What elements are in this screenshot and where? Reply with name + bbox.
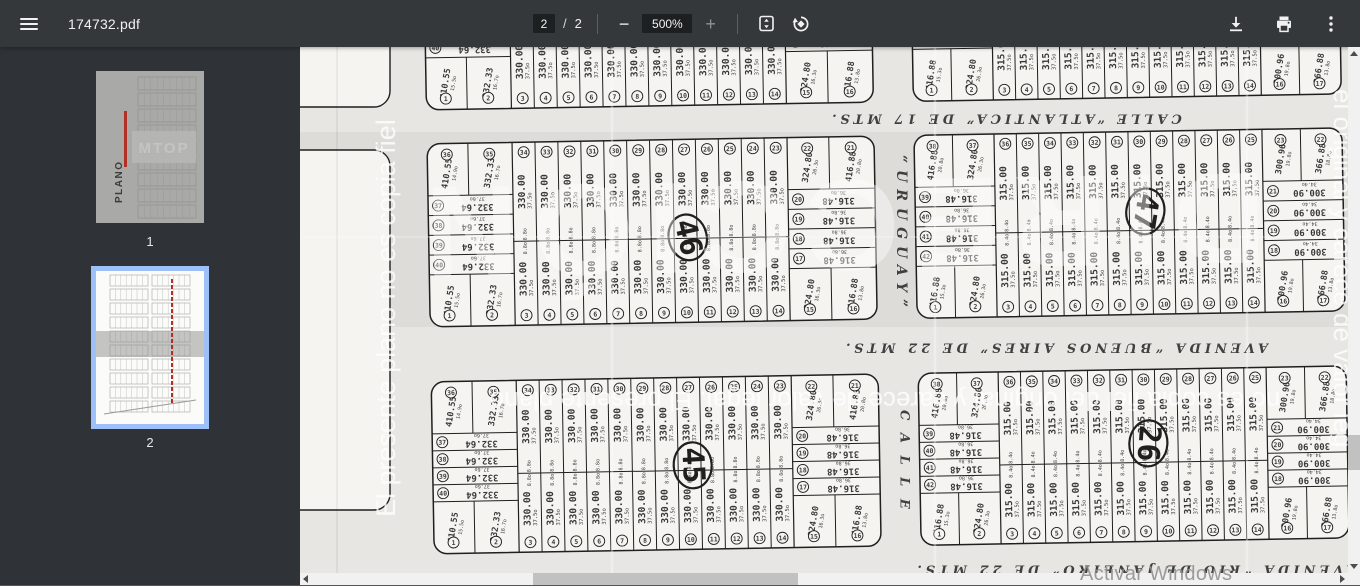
svg-text:AVENIDA “RIO DE JANEIRO” DE: AVENIDA “RIO DE JANEIRO” DE 22 MTS.: [914, 562, 1349, 574]
svg-text:19: 19: [799, 449, 807, 457]
svg-text:7: 7: [1092, 85, 1096, 93]
svg-text:11: 11: [706, 308, 714, 316]
svg-text:37.5o: 37.5o: [738, 424, 744, 441]
svg-text:2: 2: [970, 86, 974, 94]
svg-text:12: 12: [1209, 527, 1217, 535]
svg-text:37: 37: [438, 439, 446, 447]
svg-text:37.5o: 37.5o: [1080, 418, 1086, 435]
svg-text:4: 4: [544, 94, 548, 102]
svg-text:7: 7: [1095, 302, 1099, 310]
svg-text:330.00: 330.00: [675, 47, 687, 77]
svg-text:32: 32: [1095, 377, 1103, 385]
svg-text:37.6o: 37.6o: [474, 466, 489, 472]
svg-text:3: 3: [1010, 530, 1014, 538]
svg-text:38: 38: [439, 456, 447, 464]
svg-text:13: 13: [752, 308, 760, 316]
svg-text:26: 26: [1229, 374, 1237, 382]
thumbnail-page-1[interactable]: PLANOMTOP 1: [96, 71, 204, 249]
svg-text:315.00: 315.00: [996, 47, 1008, 71]
svg-text:14: 14: [779, 534, 787, 542]
svg-text:17: 17: [799, 483, 807, 491]
svg-text:37.5o: 37.5o: [1074, 53, 1080, 70]
svg-text:315.00: 315.00: [1004, 483, 1016, 518]
svg-text:37.5o: 37.5o: [602, 508, 608, 525]
svg-text:37.6o: 37.6o: [474, 432, 489, 438]
svg-text:315.00: 315.00: [1249, 479, 1261, 514]
svg-text:40: 40: [431, 47, 439, 52]
svg-text:316.48: 316.48: [827, 482, 860, 493]
svg-text:330.00: 330.00: [766, 47, 778, 75]
svg-text:8: 8: [1122, 528, 1126, 536]
svg-text:16: 16: [1276, 80, 1284, 88]
svg-text:13: 13: [1231, 526, 1239, 534]
svg-text:27: 27: [680, 146, 688, 154]
svg-text:37.5o: 37.5o: [1082, 500, 1088, 517]
svg-text:16: 16: [850, 305, 858, 313]
svg-text:8.4o: 8.4o: [1254, 447, 1260, 459]
svg-text:37.5o: 37.5o: [1214, 415, 1220, 432]
svg-text:37.5o: 37.5o: [1252, 50, 1258, 67]
svg-text:26: 26: [703, 145, 711, 153]
svg-text:8.8o: 8.8o: [756, 456, 762, 468]
svg-text:8.4o: 8.4o: [1053, 451, 1059, 463]
download-button[interactable]: [1222, 10, 1250, 38]
svg-text:37: 37: [969, 142, 977, 150]
svg-text:9: 9: [1136, 84, 1140, 92]
svg-text:8.8o: 8.8o: [733, 470, 739, 482]
svg-text:9: 9: [1144, 528, 1148, 536]
svg-text:36: 36: [1005, 378, 1013, 386]
svg-text:25: 25: [726, 145, 734, 153]
svg-text:37.5o: 37.5o: [692, 424, 698, 441]
svg-text:315.00: 315.00: [1071, 482, 1083, 517]
svg-text:10: 10: [1160, 300, 1168, 308]
svg-text:11: 11: [1183, 300, 1191, 308]
svg-text:8.8o: 8.8o: [527, 460, 533, 472]
svg-text:DIRECCIÓN: DIRECCIÓN: [410, 145, 1268, 306]
svg-text:8.8o: 8.8o: [573, 473, 579, 485]
svg-text:37.5o: 37.5o: [1163, 51, 1169, 68]
svg-text:12: 12: [733, 535, 741, 543]
svg-text:14: 14: [775, 307, 783, 315]
svg-text:36: 36: [1001, 140, 1009, 148]
svg-text:300.90: 300.90: [1294, 226, 1327, 237]
fit-to-page-button[interactable]: [753, 10, 780, 37]
svg-text:8.8o: 8.8o: [733, 456, 739, 468]
svg-text:20: 20: [1273, 441, 1281, 449]
svg-text:39: 39: [925, 430, 933, 438]
svg-text:8.8o: 8.8o: [618, 458, 624, 470]
svg-text:8.4o: 8.4o: [1254, 461, 1260, 473]
svg-text:330.00: 330.00: [698, 47, 710, 76]
svg-text:316.48: 316.48: [950, 480, 983, 491]
document-title: 174732.pdf: [68, 16, 140, 32]
svg-text:29: 29: [1162, 375, 1170, 383]
svg-text:28: 28: [657, 146, 665, 154]
svg-text:8.4o: 8.4o: [1098, 464, 1104, 476]
svg-text:316.48: 316.48: [950, 463, 983, 474]
svg-text:315.00: 315.00: [1093, 481, 1105, 516]
svg-text:2: 2: [977, 530, 981, 538]
svg-text:31: 31: [588, 147, 596, 155]
svg-text:14: 14: [1254, 526, 1262, 534]
svg-text:34.4o: 34.4o: [1302, 201, 1317, 207]
svg-text:8.4o: 8.4o: [1053, 465, 1059, 477]
svg-text:37.5o: 37.5o: [1238, 497, 1244, 514]
svg-text:37.5o: 37.5o: [1192, 416, 1198, 433]
svg-text:36.8o: 36.8o: [836, 477, 851, 483]
svg-text:5: 5: [570, 311, 574, 319]
svg-text:36.8o: 36.8o: [958, 457, 973, 463]
svg-text:5: 5: [1051, 302, 1055, 310]
svg-text:37.5o: 37.5o: [777, 58, 783, 75]
svg-text:11: 11: [1179, 83, 1187, 91]
svg-text:4: 4: [1028, 303, 1032, 311]
svg-text:33: 33: [543, 148, 551, 156]
svg-text:34.4o: 34.4o: [1303, 240, 1318, 246]
svg-text:8.4o: 8.4o: [1031, 465, 1037, 477]
svg-text:32: 32: [1091, 139, 1099, 147]
svg-text:37.5o: 37.5o: [1141, 52, 1147, 69]
svg-text:4: 4: [1032, 530, 1036, 538]
svg-text:39: 39: [439, 473, 447, 481]
svg-text:41: 41: [926, 464, 934, 472]
vertical-scrollbar-thumb[interactable]: [1348, 435, 1360, 470]
svg-text:8.4o: 8.4o: [1209, 462, 1215, 474]
svg-text:37.5o: 37.5o: [594, 61, 600, 78]
svg-text:8.4o: 8.4o: [1008, 452, 1014, 464]
svg-text:20: 20: [798, 432, 806, 440]
svg-text:315.00: 315.00: [1026, 482, 1038, 517]
svg-text:16: 16: [1279, 297, 1287, 305]
svg-text:6: 6: [1069, 85, 1073, 93]
svg-text:37.5o: 37.5o: [1096, 53, 1102, 70]
svg-text:330.00: 330.00: [705, 488, 717, 523]
svg-text:37.5o: 37.5o: [640, 61, 646, 78]
svg-text:7: 7: [1099, 529, 1103, 537]
svg-text:37.5o: 37.5o: [1230, 50, 1236, 67]
rotate-counterclockwise-icon: [791, 14, 811, 34]
svg-text:8.4o: 8.4o: [1231, 448, 1237, 460]
scroll-up-arrow-icon[interactable]: [1350, 51, 1358, 56]
svg-text:330.00: 330.00: [751, 487, 763, 522]
svg-text:37.5o: 37.5o: [1015, 501, 1021, 518]
more-vertical-icon: [1322, 14, 1340, 34]
svg-text:13: 13: [756, 535, 764, 543]
svg-text:8.4o: 8.4o: [1120, 464, 1126, 476]
svg-text:37.5o: 37.5o: [715, 424, 721, 441]
fit-to-page-icon: [757, 14, 776, 33]
svg-text:8: 8: [1114, 84, 1118, 92]
svg-text:37.5o: 37.5o: [1104, 499, 1110, 516]
svg-text:3: 3: [521, 95, 525, 103]
svg-text:17: 17: [1316, 80, 1324, 88]
svg-text:37.5o: 37.5o: [1171, 498, 1177, 515]
svg-text:315.00: 315.00: [1160, 480, 1172, 515]
svg-text:9: 9: [1140, 301, 1144, 309]
svg-text:42: 42: [926, 481, 934, 489]
thumbnail-2-label: 2: [96, 435, 204, 450]
svg-text:8.8o: 8.8o: [779, 470, 785, 482]
svg-text:8.4o: 8.4o: [1187, 463, 1193, 475]
thumbnail-page-2[interactable]: 2: [96, 271, 204, 450]
svg-text:7: 7: [620, 537, 624, 545]
svg-text:315.00: 315.00: [1219, 47, 1231, 67]
svg-text:22: 22: [803, 145, 811, 153]
svg-text:16: 16: [1283, 524, 1291, 532]
rotate-button[interactable]: [787, 10, 815, 38]
svg-text:27: 27: [1202, 137, 1210, 145]
svg-text:17: 17: [1319, 297, 1327, 305]
pdf-toolbar: 174732.pdf / 2 − 500% +: [0, 0, 1360, 47]
svg-text:316.48: 316.48: [949, 429, 982, 440]
svg-text:10: 10: [1164, 527, 1172, 535]
svg-text:3: 3: [524, 312, 528, 320]
horizontal-scrollbar[interactable]: [300, 573, 1348, 585]
svg-text:22: 22: [1317, 136, 1325, 144]
svg-text:315.00: 315.00: [1138, 480, 1150, 515]
svg-text:33: 33: [1068, 139, 1076, 147]
svg-text:37.5o: 37.5o: [708, 59, 714, 76]
scroll-right-arrow-icon[interactable]: [1340, 575, 1345, 583]
svg-text:300.90: 300.90: [1293, 187, 1326, 198]
svg-text:332.64: 332.64: [465, 472, 498, 483]
svg-text:12: 12: [1205, 300, 1213, 308]
svg-text:330.00: 330.00: [591, 490, 603, 525]
svg-text:300.90: 300.90: [1297, 423, 1330, 434]
svg-text:13: 13: [1227, 299, 1235, 307]
svg-text:34.4o: 34.4o: [1302, 181, 1317, 187]
zoom-in-button[interactable]: +: [699, 13, 722, 35]
vertical-scrollbar[interactable]: [1348, 47, 1360, 573]
svg-text:37.5o: 37.5o: [685, 60, 691, 77]
svg-text:15: 15: [810, 533, 818, 541]
svg-text:37.5o: 37.5o: [1125, 417, 1131, 434]
svg-text:36: 36: [443, 151, 451, 159]
svg-text:36.8o: 36.8o: [958, 440, 973, 446]
svg-text:el original y carece de valor: el original y carece de valor leg: [1328, 89, 1348, 447]
svg-text:34.4o: 34.4o: [1302, 220, 1317, 226]
thumb1-plano-title: PLANO: [114, 161, 125, 204]
svg-text:15: 15: [806, 306, 814, 314]
svg-text:29: 29: [1158, 138, 1166, 146]
scroll-left-arrow-icon[interactable]: [303, 575, 308, 583]
svg-text:37.5o: 37.5o: [646, 425, 652, 442]
svg-text:2: 2: [486, 94, 490, 102]
print-button[interactable]: [1270, 10, 1298, 38]
svg-text:315.00: 315.00: [1108, 47, 1120, 69]
page-separator: /: [563, 16, 567, 31]
svg-text:8.4o: 8.4o: [1075, 465, 1081, 477]
svg-text:37.5o: 37.5o: [1149, 499, 1155, 516]
svg-text:10: 10: [687, 536, 695, 544]
svg-text:315.00: 315.00: [1152, 47, 1164, 68]
svg-text:31: 31: [1113, 138, 1121, 146]
svg-text:37.5o: 37.5o: [577, 426, 583, 443]
svg-text:6: 6: [593, 310, 597, 318]
svg-text:35: 35: [1024, 140, 1032, 148]
svg-text:37.5o: 37.5o: [548, 62, 554, 79]
svg-text:37.5o: 37.5o: [1118, 52, 1124, 69]
svg-text:330.00: 330.00: [545, 491, 557, 526]
print-icon: [1274, 14, 1294, 34]
svg-text:25: 25: [1251, 374, 1259, 382]
svg-text:37.5o: 37.5o: [693, 506, 699, 523]
svg-text:315.00: 315.00: [1115, 481, 1127, 516]
svg-text:2: 2: [973, 303, 977, 311]
svg-text:29: 29: [634, 147, 642, 155]
svg-text:21: 21: [1273, 424, 1281, 432]
svg-text:1: 1: [937, 530, 941, 538]
scroll-down-arrow-icon[interactable]: [1350, 564, 1358, 569]
zoom-level: 500%: [642, 14, 692, 33]
svg-text:34: 34: [520, 149, 528, 157]
svg-text:37.5o: 37.5o: [579, 508, 585, 525]
svg-text:35: 35: [485, 150, 493, 158]
svg-text:37.5o: 37.5o: [739, 506, 745, 523]
svg-text:4: 4: [1025, 86, 1029, 94]
svg-text:37.5o: 37.5o: [1035, 418, 1041, 435]
svg-text:8.4o: 8.4o: [1030, 451, 1036, 463]
svg-text:300.90: 300.90: [1293, 206, 1326, 217]
menu-button[interactable]: [16, 14, 42, 34]
svg-text:37.5o: 37.5o: [1126, 499, 1132, 516]
svg-text:37.5o: 37.5o: [1236, 415, 1242, 432]
svg-text:5: 5: [567, 94, 571, 102]
toolbar-divider: [737, 14, 738, 34]
svg-text:8.4o: 8.4o: [1232, 462, 1238, 474]
svg-text:8: 8: [639, 310, 643, 318]
svg-text:7: 7: [616, 310, 620, 318]
svg-text:37.5o: 37.5o: [617, 61, 623, 78]
svg-text:34.4o: 34.4o: [1306, 451, 1321, 457]
svg-text:37.5o: 37.5o: [571, 62, 577, 79]
svg-text:315.00: 315.00: [1227, 479, 1239, 514]
svg-text:2: 2: [490, 311, 494, 319]
svg-text:37.6o: 37.6o: [474, 449, 489, 455]
svg-text:3: 3: [1002, 86, 1006, 94]
svg-text:23: 23: [1281, 374, 1289, 382]
svg-text:330.00: 330.00: [637, 489, 649, 524]
svg-text:14: 14: [771, 90, 779, 98]
svg-text:34.4o: 34.4o: [1306, 434, 1321, 440]
svg-text:“URUGUAY”: “URUGUAY”: [893, 155, 909, 314]
svg-text:1: 1: [452, 539, 456, 547]
svg-text:18: 18: [799, 466, 807, 474]
page-number-input[interactable]: [533, 14, 555, 33]
svg-text:37.5o: 37.5o: [669, 425, 675, 442]
svg-text:11: 11: [710, 535, 718, 543]
svg-text:316.48: 316.48: [827, 448, 860, 459]
svg-text:37.5o: 37.5o: [754, 59, 760, 76]
svg-text:37.5o: 37.5o: [784, 423, 790, 440]
svg-text:18: 18: [1274, 475, 1282, 483]
thumbnail-sidebar: PLANOMTOP 1 2: [0, 47, 300, 585]
svg-text:C A L L E: C A L L E: [897, 410, 912, 513]
svg-text:37.5o: 37.5o: [1260, 497, 1266, 514]
svg-text:37.5o: 37.5o: [1058, 418, 1064, 435]
svg-text:17: 17: [1323, 524, 1331, 532]
svg-text:9: 9: [662, 309, 666, 317]
svg-text:37.5o: 37.5o: [625, 508, 631, 525]
svg-text:CALLE “ATLANTICA” DE 17 MTS: CALLE “ATLANTICA” DE 17 MTS.: [828, 111, 1181, 126]
svg-text:37.5o: 37.5o: [556, 509, 562, 526]
svg-text:10: 10: [679, 92, 687, 100]
svg-text:330.00: 330.00: [721, 47, 733, 76]
svg-text:8.8o: 8.8o: [756, 470, 762, 482]
svg-text:37.5o: 37.5o: [1059, 500, 1065, 517]
download-icon: [1226, 14, 1246, 34]
svg-text:30: 30: [1135, 138, 1143, 146]
menu-icon: [20, 18, 38, 30]
svg-text:9: 9: [658, 92, 662, 100]
svg-text:316.48: 316.48: [950, 446, 983, 457]
svg-text:35: 35: [1028, 378, 1036, 386]
svg-text:37.5o: 37.5o: [785, 505, 791, 522]
svg-text:23: 23: [1277, 136, 1285, 144]
svg-text:8.8o: 8.8o: [572, 459, 578, 471]
svg-text:8.4o: 8.4o: [1097, 450, 1103, 462]
svg-text:8.4o: 8.4o: [1075, 451, 1081, 463]
svg-text:300.90: 300.90: [1298, 457, 1331, 468]
svg-text:37.6o: 37.6o: [475, 483, 490, 489]
svg-text:8.4o: 8.4o: [1209, 448, 1215, 460]
svg-text:330.00: 330.00: [743, 47, 755, 75]
svg-text:AVENIDA “BUENOS AIRES” DE 2: AVENIDA “BUENOS AIRES” DE 22 MTS.: [842, 340, 1270, 355]
svg-text:332.64: 332.64: [465, 438, 498, 449]
svg-text:2: 2: [494, 538, 498, 546]
svg-text:37.5o: 37.5o: [670, 507, 676, 524]
svg-text:37.5o: 37.5o: [531, 427, 537, 444]
svg-text:36.8o: 36.8o: [836, 460, 851, 466]
horizontal-scrollbar-thumb[interactable]: [533, 573, 798, 585]
zoom-out-button[interactable]: −: [613, 13, 636, 35]
svg-text:23: 23: [772, 144, 780, 152]
svg-text:330.00: 330.00: [728, 488, 740, 523]
svg-text:37.5o: 37.5o: [1169, 416, 1175, 433]
svg-text:10: 10: [1157, 84, 1165, 92]
svg-text:13: 13: [1224, 82, 1232, 90]
svg-text:31: 31: [1117, 376, 1125, 384]
svg-text:315.00: 315.00: [1041, 47, 1053, 70]
svg-text:45: 45: [674, 446, 711, 484]
svg-text:3: 3: [528, 539, 532, 547]
svg-text:37.5o: 37.5o: [1185, 51, 1191, 68]
svg-text:19: 19: [1274, 458, 1282, 466]
svg-text:18: 18: [1270, 247, 1278, 255]
more-options-button[interactable]: [1318, 10, 1344, 38]
svg-text:34.4o: 34.4o: [1307, 468, 1322, 474]
svg-text:21: 21: [847, 144, 855, 152]
pdf-page-canvas[interactable]: 410.5514.9o36332.3316.7o35332.6437.6o373…: [300, 47, 1348, 573]
svg-text:300.90: 300.90: [1297, 440, 1330, 451]
svg-text:22: 22: [1321, 374, 1329, 382]
svg-text:37.5o: 37.5o: [1013, 419, 1019, 436]
svg-text:316.48: 316.48: [819, 47, 852, 48]
svg-text:37.5o: 37.5o: [1029, 54, 1035, 71]
svg-text:12: 12: [729, 308, 737, 316]
svg-text:37.5o: 37.5o: [1102, 417, 1108, 434]
svg-text:315.00: 315.00: [1048, 482, 1060, 517]
svg-text:8.8o: 8.8o: [664, 472, 670, 484]
svg-text:8.4o: 8.4o: [1187, 449, 1193, 461]
svg-text:332.64: 332.64: [458, 47, 491, 54]
svg-text:37.5o: 37.5o: [1193, 498, 1199, 515]
svg-text:15: 15: [802, 89, 810, 97]
svg-text:37.5o: 37.5o: [647, 507, 653, 524]
svg-text:6: 6: [1077, 529, 1081, 537]
svg-text:4: 4: [551, 538, 555, 546]
